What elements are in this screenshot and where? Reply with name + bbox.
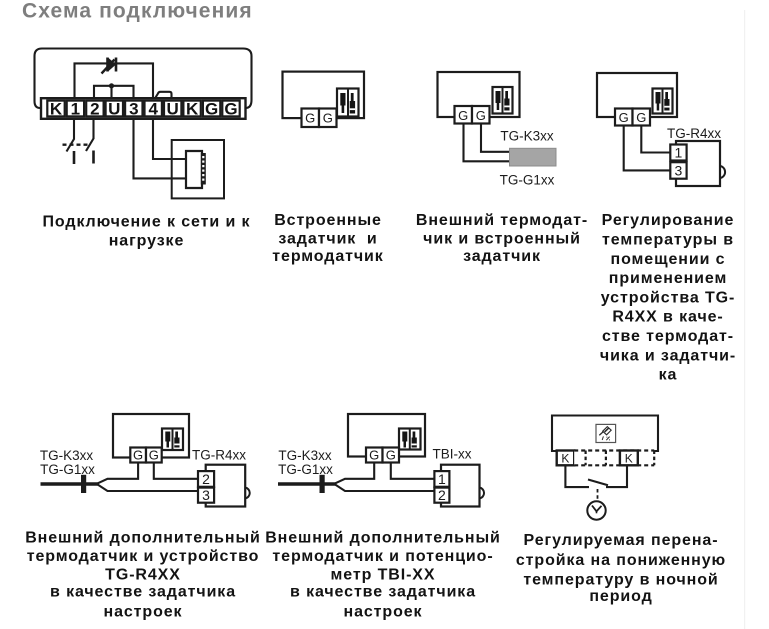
svg-text:K: K <box>186 99 199 118</box>
svg-text:R4XX в каче-: R4XX в каче- <box>612 309 723 326</box>
svg-text:чик и встроенный: чик и встроенный <box>423 230 581 247</box>
svg-text:задатчик и: задатчик и <box>278 230 377 247</box>
svg-text:температуры в: температуры в <box>602 232 734 249</box>
svg-text:3: 3 <box>675 162 683 178</box>
svg-text:чика и задатчи-: чика и задатчи- <box>600 347 736 364</box>
svg-text:стройка на пониженную: стройка на пониженную <box>516 552 726 569</box>
svg-text:2: 2 <box>438 487 446 503</box>
svg-text:1: 1 <box>675 145 683 161</box>
svg-text:G: G <box>205 99 218 118</box>
svg-text:метр TBI-XX: метр TBI-XX <box>331 567 436 584</box>
svg-text:TG-G1xx: TG-G1xx <box>278 462 333 477</box>
svg-text:Встроенные: Встроенные <box>274 212 382 229</box>
svg-text:3: 3 <box>129 99 138 118</box>
svg-text:в качестве задатчика: в качестве задатчика <box>50 584 236 601</box>
svg-text:U: U <box>167 99 179 118</box>
svg-text:термодатчик и устройство: термодатчик и устройство <box>27 548 260 565</box>
svg-text:U: U <box>108 99 120 118</box>
svg-text:G: G <box>458 108 468 123</box>
svg-text:применением: применением <box>609 270 728 287</box>
svg-text:Регулируемая перена-: Регулируемая перена- <box>524 532 719 549</box>
svg-text:период: период <box>589 588 652 605</box>
svg-text:Внешний дополнительный: Внешний дополнительный <box>25 530 261 547</box>
svg-text:термодатчик и потенцио-: термодатчик и потенцио- <box>272 548 493 565</box>
svg-text:TG-K3xx: TG-K3xx <box>278 448 332 463</box>
svg-text:устройства TG-: устройства TG- <box>601 289 735 306</box>
svg-text:нагрузке: нагрузке <box>109 233 185 250</box>
svg-text:G: G <box>386 448 396 463</box>
svg-text:G: G <box>149 448 159 463</box>
svg-text:Регулирование: Регулирование <box>602 212 735 229</box>
svg-text:TG-G1xx: TG-G1xx <box>40 462 95 477</box>
svg-text:Схема подключения: Схема подключения <box>22 0 253 23</box>
svg-text:TG-R4xx: TG-R4xx <box>667 126 721 141</box>
svg-text:G: G <box>636 110 646 125</box>
svg-text:Внешний дополнительный: Внешний дополнительный <box>265 530 501 547</box>
svg-text:задатчик: задатчик <box>463 248 541 265</box>
svg-text:TG-R4xx: TG-R4xx <box>192 448 246 463</box>
svg-text:G: G <box>323 111 333 126</box>
svg-text:Подключение к сети и к: Подключение к сети и к <box>43 213 251 230</box>
svg-text:TG-K3xx: TG-K3xx <box>500 128 554 143</box>
svg-text:G: G <box>476 108 486 123</box>
svg-text:настроек: настроек <box>104 604 183 621</box>
svg-text:TG-G1xx: TG-G1xx <box>500 172 555 187</box>
svg-text:стве термодат-: стве термодат- <box>602 328 734 345</box>
svg-text:Внешний термодат-: Внешний термодат- <box>416 212 588 229</box>
svg-text:G: G <box>619 110 629 125</box>
svg-text:настроек: настроек <box>344 604 423 621</box>
svg-text:K: K <box>625 452 633 466</box>
svg-text:2: 2 <box>90 99 99 118</box>
svg-text:G: G <box>133 448 143 463</box>
svg-text:1: 1 <box>438 471 446 487</box>
svg-text:в качестве задатчика: в качестве задатчика <box>290 584 476 601</box>
svg-text:TBI-xx: TBI-xx <box>433 447 472 462</box>
svg-text:TG-K3xx: TG-K3xx <box>40 448 94 463</box>
svg-text:4: 4 <box>148 99 158 118</box>
svg-text:G: G <box>369 448 379 463</box>
svg-text:K: K <box>561 452 569 466</box>
svg-text:G: G <box>305 111 315 126</box>
svg-text:термодатчик: термодатчик <box>272 248 383 265</box>
svg-text:помещении с: помещении с <box>611 251 726 268</box>
svg-text:1: 1 <box>71 99 80 118</box>
svg-text:G: G <box>224 99 237 118</box>
svg-text:K: K <box>50 99 63 118</box>
svg-text:температуру в ночной: температуру в ночной <box>523 572 718 589</box>
svg-text:ка: ка <box>659 367 678 384</box>
svg-text:2: 2 <box>202 471 210 487</box>
svg-text:3: 3 <box>202 487 210 503</box>
svg-text:TG-R4XX: TG-R4XX <box>105 567 181 584</box>
